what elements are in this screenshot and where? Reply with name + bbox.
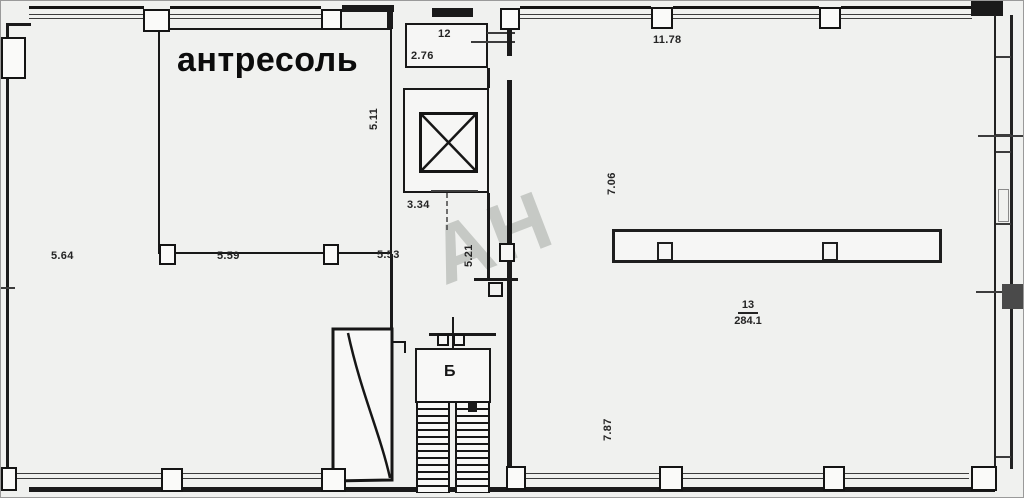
dimension-tick	[978, 135, 1024, 137]
column-marker	[161, 468, 183, 492]
wall-stub	[432, 8, 473, 17]
wall-dark-block	[1002, 284, 1023, 309]
wall-top-window	[29, 6, 144, 21]
wall-divider	[996, 56, 1011, 58]
counter-support	[822, 242, 838, 261]
dim-5-53: 5.53	[377, 250, 400, 261]
column-marker	[159, 244, 176, 265]
door-opening	[505, 56, 514, 80]
wall-right	[994, 15, 1013, 469]
wall-bottom-window	[845, 471, 969, 482]
wall-divider	[996, 223, 1011, 225]
wall-top-window	[520, 6, 651, 21]
wall-bottom-window	[683, 471, 823, 482]
wall-left	[6, 25, 9, 469]
wall-bottom-window	[183, 471, 321, 482]
room-13-number: 13	[738, 299, 758, 314]
dim-7-87: 7.87	[603, 399, 614, 441]
stair-flight-left	[416, 401, 450, 493]
floor-plan: АН антресоль 5.64 5.59 5.53 5.1	[0, 0, 1024, 498]
ramp-slope-line	[348, 333, 390, 478]
dimension-tick	[431, 190, 478, 192]
room-12-number: 12	[438, 29, 451, 40]
room-13-tag: 13 284.1	[723, 295, 773, 327]
ramp	[333, 329, 405, 481]
window-left	[1, 37, 26, 79]
stair-start-mark	[468, 403, 477, 412]
stair-flight-right	[455, 401, 490, 493]
wall-bottom-window	[17, 471, 161, 482]
column-marker	[651, 7, 673, 29]
wall-top-window	[673, 6, 819, 21]
column-marker	[321, 468, 346, 492]
elevator-car	[419, 112, 478, 173]
corridor-wall	[487, 193, 490, 281]
column-marker	[819, 7, 841, 29]
column-marker	[321, 9, 342, 30]
wall-segment	[390, 254, 393, 330]
wall-pier	[437, 334, 449, 346]
mezzanine-label: антресоль	[177, 41, 358, 80]
wall-top-window	[841, 6, 972, 21]
dim-5-64: 5.64	[51, 251, 74, 262]
column-marker	[500, 8, 520, 30]
column-marker	[506, 466, 526, 490]
wall-divider	[996, 456, 1011, 458]
corridor-wall	[474, 278, 518, 281]
wall-top-window	[170, 6, 321, 21]
wall-pier	[488, 282, 503, 297]
wall-pier	[453, 334, 465, 346]
room-13-area: 284.1	[723, 315, 773, 327]
dim-5-59: 5.59	[217, 251, 240, 262]
wall-corner-block	[971, 1, 1003, 16]
column-marker	[659, 466, 683, 491]
dim-5-11: 5.11	[369, 88, 380, 130]
column-marker	[971, 466, 997, 491]
counter-support	[657, 242, 673, 261]
room-12-area: 2.76	[411, 51, 434, 62]
door-jamb	[499, 243, 515, 262]
stair-letter: Б	[444, 363, 456, 381]
column-marker	[323, 244, 339, 265]
wall-segment	[487, 68, 490, 88]
dimension-tick	[1, 287, 15, 289]
dim-3-34: 3.34	[407, 200, 430, 211]
wall-segment	[6, 23, 31, 26]
wall-bottom-window	[526, 471, 659, 482]
wall-divider	[996, 151, 1011, 153]
window-pane	[998, 189, 1009, 222]
column-marker	[1, 467, 17, 491]
column-marker	[143, 9, 170, 32]
dim-5-21: 5.21	[464, 227, 475, 267]
dim-7-06: 7.06	[607, 151, 618, 195]
wall-stub	[387, 11, 393, 29]
column-marker	[823, 466, 845, 491]
dim-11-78: 11.78	[653, 35, 681, 46]
